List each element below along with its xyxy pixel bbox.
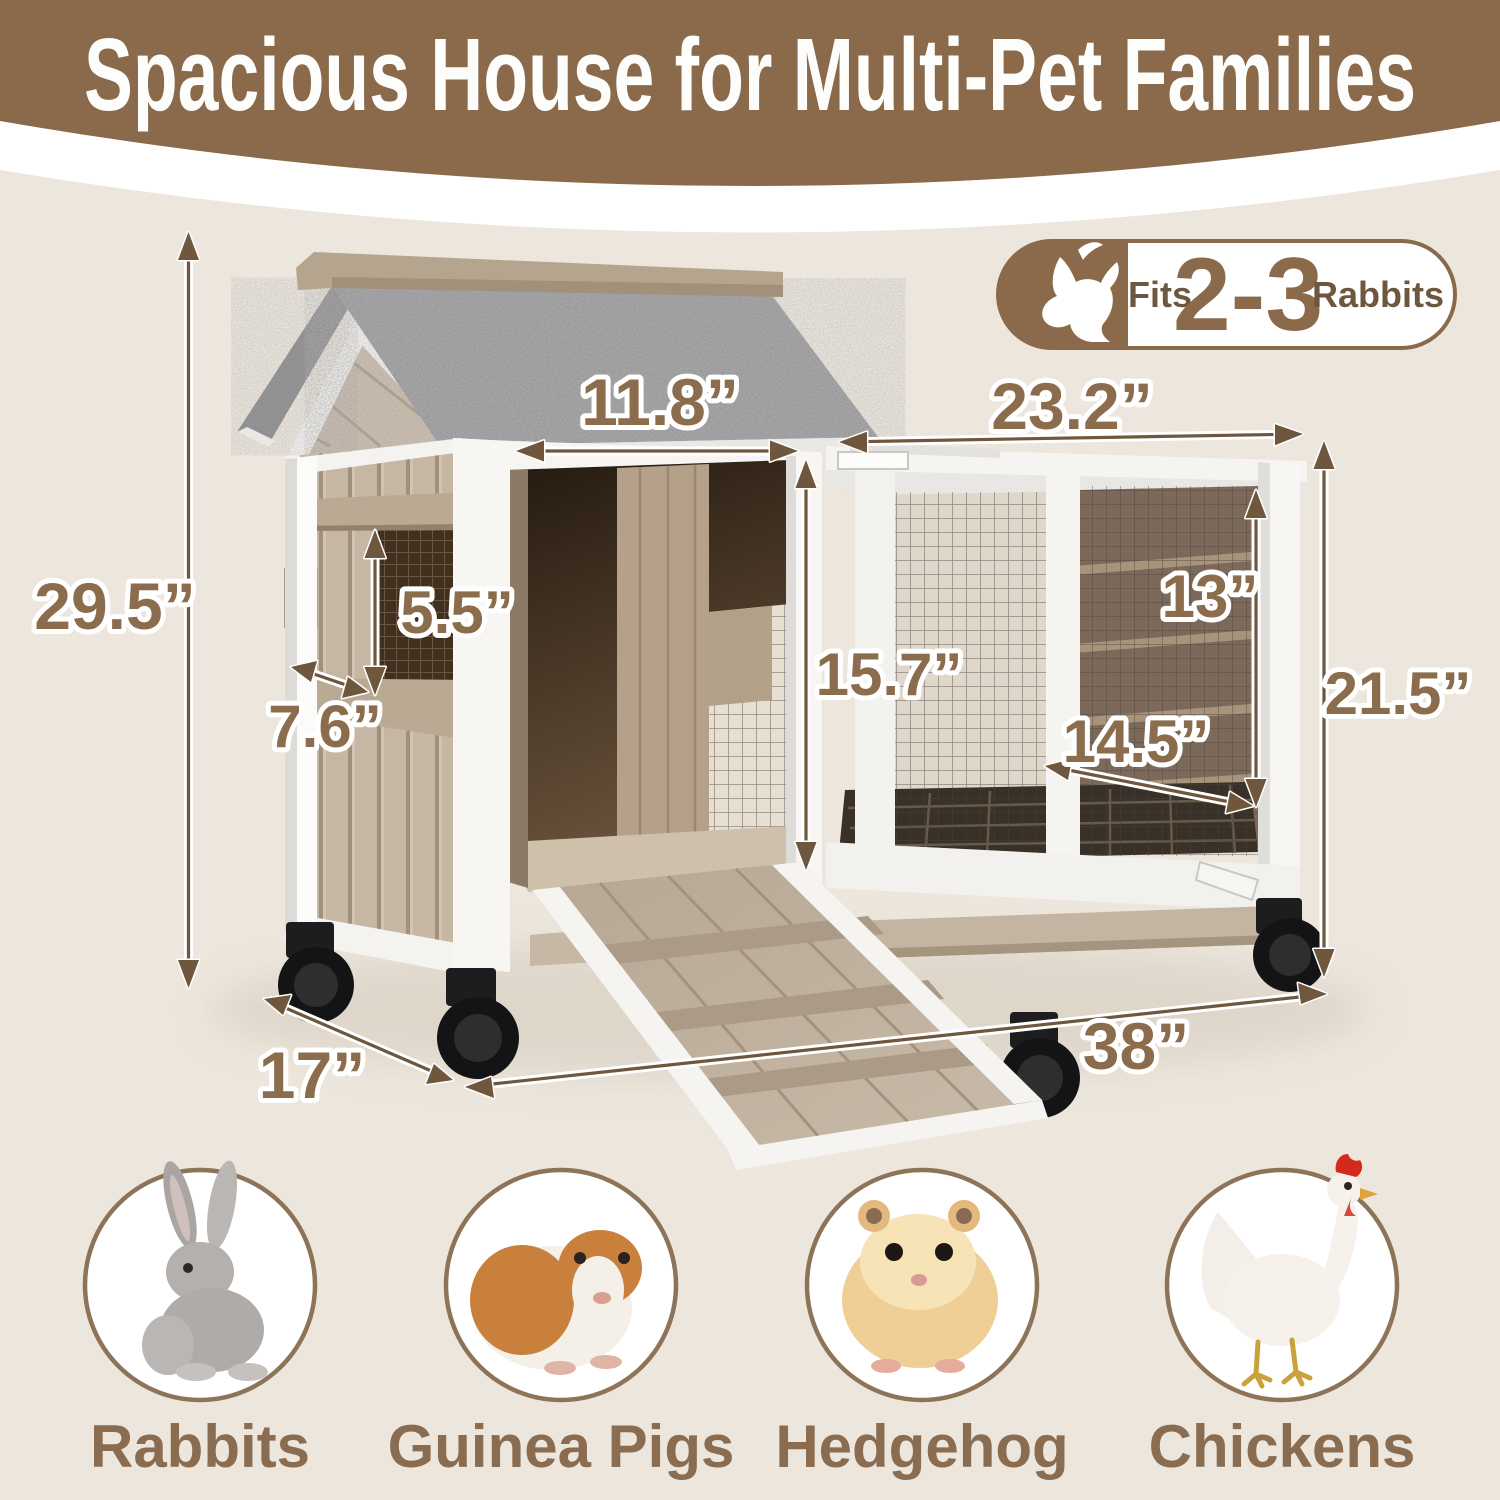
svg-text:7.6”: 7.6”	[268, 693, 381, 760]
svg-text:Spacious House for Multi-Pet F: Spacious House for Multi-Pet Families	[84, 17, 1416, 132]
svg-text:38”: 38”	[1083, 1009, 1189, 1083]
svg-text:Rabbits: Rabbits	[1312, 274, 1444, 315]
svg-text:2-3: 2-3	[1173, 237, 1323, 353]
svg-text:23.2”: 23.2”	[991, 369, 1152, 443]
svg-text:21.5”: 21.5”	[1325, 660, 1472, 727]
svg-text:5.5”: 5.5”	[400, 579, 513, 646]
svg-text:Rabbits: Rabbits	[90, 1413, 310, 1480]
svg-text:15.7”: 15.7”	[816, 641, 963, 708]
svg-text:14.5”: 14.5”	[1063, 708, 1210, 775]
svg-text:13”: 13”	[1162, 563, 1259, 630]
svg-text:29.5”: 29.5”	[34, 569, 195, 643]
svg-text:17”: 17”	[259, 1038, 365, 1112]
svg-text:Guinea Pigs: Guinea Pigs	[388, 1413, 735, 1480]
svg-text:Hedgehog: Hedgehog	[775, 1413, 1068, 1480]
svg-text:11.8”: 11.8”	[581, 365, 739, 439]
svg-text:Chickens: Chickens	[1149, 1413, 1416, 1480]
